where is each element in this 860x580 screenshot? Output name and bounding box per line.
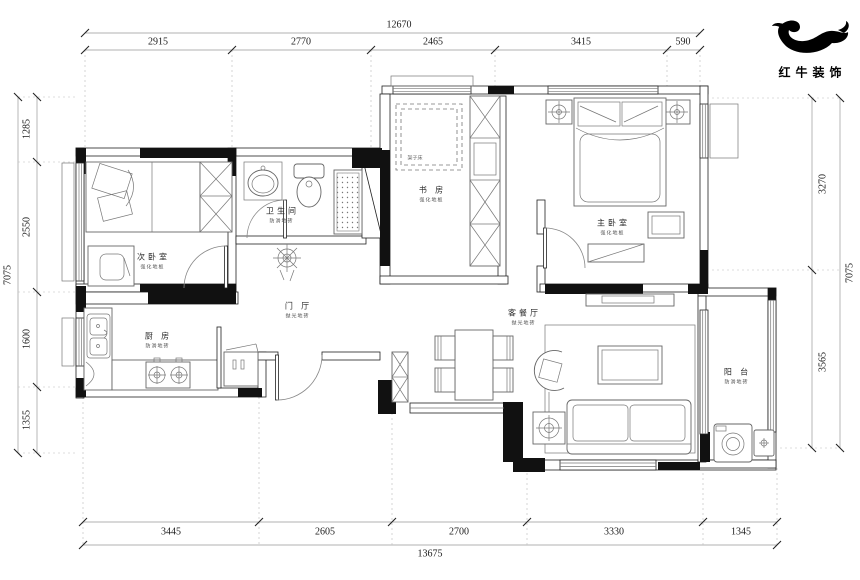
room-material-kitchen: 防滑地砖 [144,343,169,350]
dim-bottom-seg-4: 1345 [731,527,751,538]
armchair-icon [534,350,564,390]
sofa-icon [567,400,691,454]
partition [217,327,221,388]
floorplan-page: 红牛装饰 12670 2915 2770 2465 3415 590 13675… [0,0,860,580]
room-material-bathroom: 防滑地砖 [268,218,293,225]
room-label-balcony: 阳 台 [721,367,751,378]
kitchen-fixtures [84,308,258,390]
tatami-note: 架子床 [407,155,422,162]
floor-plan-drawing [0,0,860,580]
master-door-icon [544,228,586,268]
dim-right-seg-1: 3565 [818,352,829,372]
dim-bottom-seg-1: 2605 [315,527,335,538]
dim-left-seg-0: 1285 [22,119,33,139]
room-material-master: 强化地板 [599,230,624,237]
double-bed-icon [574,98,666,206]
dresser-icon [648,212,684,238]
stove-icon [146,358,190,388]
shoe-cabinet-icon [392,352,408,402]
dim-top-seg-2: 2465 [423,37,443,48]
nightstand-lamp-icon [546,100,572,124]
balcony-fixtures [714,424,774,462]
brand-logo [760,18,852,66]
dim-bottom-total: 13675 [418,549,443,560]
fridge-icon [224,344,258,386]
tv-cabinet-icon [586,294,674,306]
plant-icon [273,244,301,281]
coffee-table-icon [598,346,662,384]
desk-chair-icon [88,246,134,286]
dim-top-seg-4: 590 [676,37,691,48]
shower-icon [334,170,362,234]
room-label-bedroom2: 次卧室 [134,252,170,263]
dim-bottom-seg-3: 3330 [604,527,624,538]
study-furniture [396,96,500,266]
room-label-kitchen: 厨 房 [142,331,172,342]
wardrobe-icon [200,162,232,232]
entry-door-icon [276,355,323,400]
single-bed-icon [86,162,200,232]
washing-machine-icon [714,424,752,462]
sink-icon [244,162,282,200]
dim-top-total: 12670 [387,20,412,31]
dim-right-seg-0: 3270 [818,174,829,194]
living-dining-furniture [435,294,695,454]
toilet-icon [294,164,324,207]
room-label-study: 书 房 [416,185,446,196]
room-label-living: 客餐厅 [505,308,541,319]
room-material-study: 强化地板 [418,197,443,204]
window-sill [62,163,74,281]
dim-top-seg-1: 2770 [291,37,311,48]
mop-sink-icon [754,430,774,456]
room-material-bedroom2: 强化地板 [139,264,164,271]
dim-left-seg-2: 1600 [22,329,33,349]
dining-table-icon [435,330,513,400]
dim-bottom-seg-0: 3445 [161,527,181,538]
tatami-bed-icon [396,104,462,170]
dim-top-seg-3: 3415 [571,37,591,48]
room-label-bathroom: 卫生间 [263,206,299,217]
dim-top-seg-0: 2915 [148,37,168,48]
nightstand-lamp-icon [664,100,690,124]
bench-icon [588,244,644,262]
side-table-lamp-icon [533,412,565,444]
room-label-master: 主卧室 [594,218,630,229]
dim-bottom-seg-2: 2700 [449,527,469,538]
master-furniture [546,98,690,262]
kitchen-sink-icon [84,308,112,390]
bedroom2-door-icon [184,246,228,288]
bathroom-fixtures [244,162,362,234]
dim-left-seg-1: 2550 [22,217,33,237]
bull-logo-icon [772,20,849,52]
dim-left-total: 7075 [3,265,14,285]
room-label-hall: 门 厅 [282,301,312,312]
room-material-balcony: 防滑地砖 [723,379,748,386]
brand-name: 红牛装饰 [773,64,846,81]
dim-left-seg-3: 1355 [22,410,33,430]
room-material-hall: 抛光地砖 [284,313,309,320]
study-wardrobe-icon [470,96,500,266]
dim-right-total: 7075 [845,263,856,283]
room-material-living: 抛光地砖 [510,320,535,327]
